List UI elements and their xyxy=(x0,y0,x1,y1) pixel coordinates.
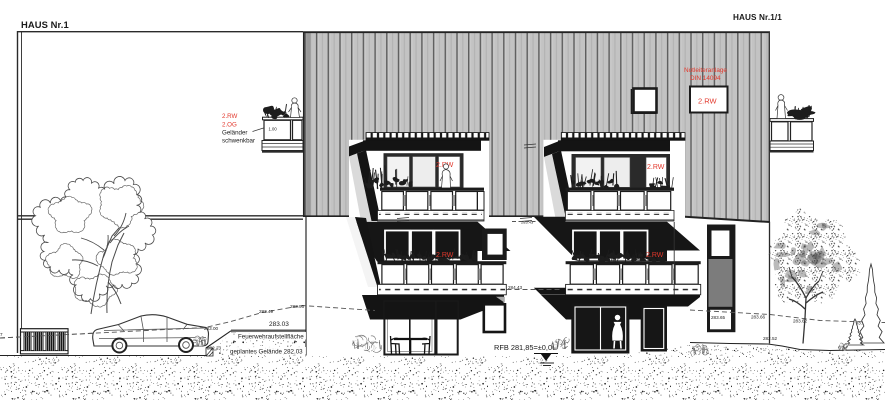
svg-text:2.RW: 2.RW xyxy=(222,113,238,120)
svg-text:284.43: 284.43 xyxy=(508,285,522,290)
svg-text:HAUS Nr.1: HAUS Nr.1 xyxy=(21,19,69,30)
svg-text:2.RW: 2.RW xyxy=(698,97,718,106)
svg-text:2.OG: 2.OG xyxy=(222,122,237,129)
svg-text:HAUS Nr.1/1: HAUS Nr.1/1 xyxy=(733,13,782,22)
svg-text:2.RW: 2.RW xyxy=(436,252,454,259)
svg-text:2.RW: 2.RW xyxy=(647,164,665,171)
svg-text:DIN 14094: DIN 14094 xyxy=(690,75,721,82)
svg-text:283.03: 283.03 xyxy=(269,321,289,328)
svg-text:RFB 281,85=±0,00: RFB 281,85=±0,00 xyxy=(494,343,556,352)
svg-text:283.00: 283.00 xyxy=(204,326,218,331)
svg-text:1.00: 1.00 xyxy=(269,127,278,132)
svg-text:2.RW: 2.RW xyxy=(646,252,664,259)
svg-text:283.96: 283.96 xyxy=(290,304,304,309)
svg-text:283.43: 283.43 xyxy=(521,220,534,225)
svg-text:282.52: 282.52 xyxy=(763,336,777,341)
svg-text:283.66: 283.66 xyxy=(751,315,765,320)
svg-text:Feuerwehraufstellfläche: Feuerwehraufstellfläche xyxy=(238,334,304,341)
svg-text:282.23: 282.23 xyxy=(207,346,221,351)
svg-text:Geländer: Geländer xyxy=(222,130,247,137)
svg-text:schwenkbar: schwenkbar xyxy=(222,138,255,145)
svg-text:283.49: 283.49 xyxy=(259,309,273,314)
svg-text:283.65: 283.65 xyxy=(711,315,725,320)
svg-text:Notleiteranlage: Notleiteranlage xyxy=(684,67,727,74)
svg-text:7: 7 xyxy=(0,332,3,337)
svg-text:geplantes Gelände 282.03: geplantes Gelände 282.03 xyxy=(230,349,303,356)
